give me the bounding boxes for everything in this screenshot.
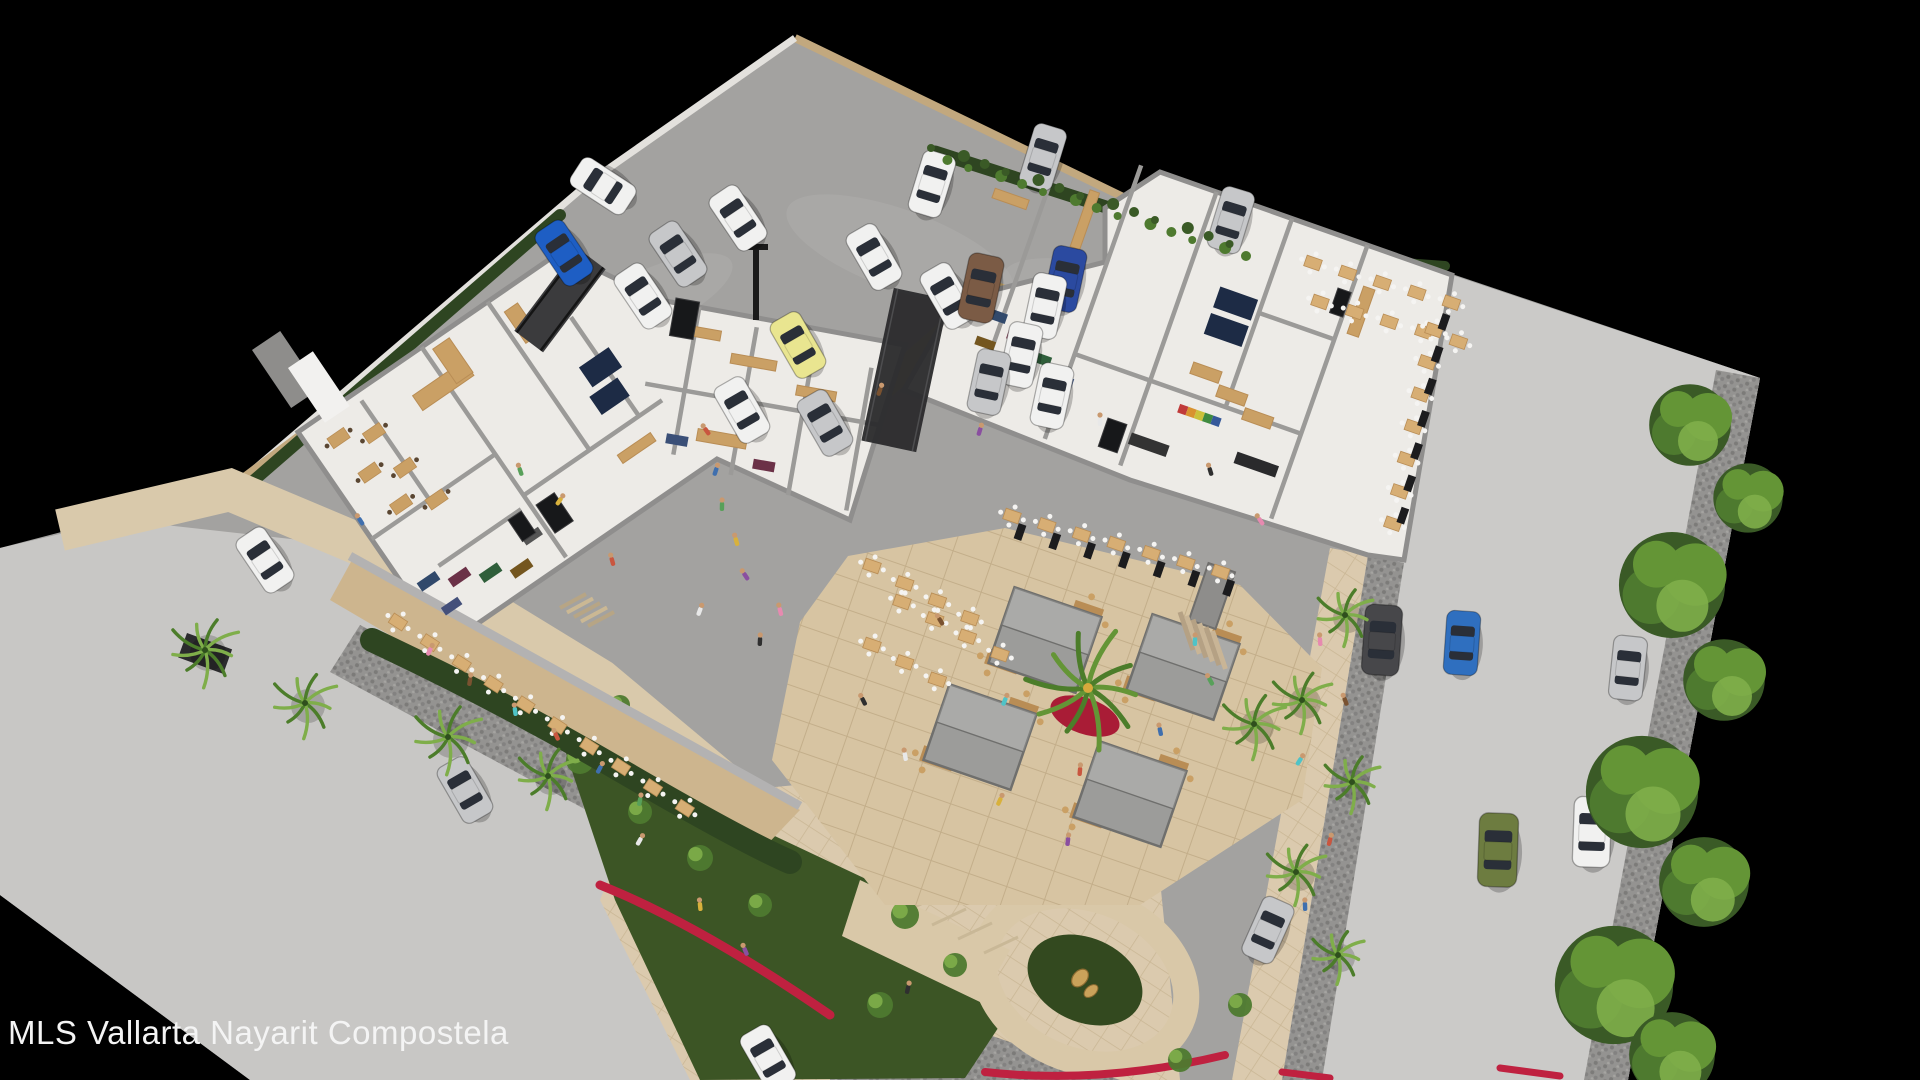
shrub: [868, 994, 882, 1008]
hedge-leaf: [1076, 192, 1084, 200]
car-roof: [1449, 635, 1474, 653]
hedge-leaf: [1151, 216, 1159, 224]
shrub: [749, 895, 762, 908]
hedge-leaf: [1188, 236, 1196, 244]
tree-canopy: [1691, 878, 1735, 922]
hedge-leaf: [1204, 231, 1214, 241]
hedge-leaf: [1017, 179, 1027, 189]
person-body: [1303, 902, 1308, 911]
tree-canopy: [1738, 495, 1772, 529]
tree-canopy: [1671, 845, 1711, 885]
palm-center: [1293, 869, 1299, 875]
hedge-leaf: [1166, 227, 1176, 237]
shrub: [892, 903, 907, 918]
car-roof: [1484, 841, 1512, 860]
watermark-text: MLS Vallarta Nayarit Compostela: [8, 1014, 509, 1052]
person: [719, 497, 724, 511]
shrub: [944, 955, 957, 968]
car-roof: [1368, 631, 1396, 650]
hedge-leaf: [1054, 183, 1064, 193]
tree-canopy: [1626, 787, 1681, 842]
tree-canopy: [1723, 469, 1754, 500]
person-body: [1318, 637, 1323, 646]
plaza-3d-rendering: [0, 0, 1920, 1080]
palm-center: [202, 647, 208, 653]
hedge-leaf: [1092, 203, 1102, 213]
tree-canopy: [1660, 391, 1696, 427]
hedge-leaf: [942, 155, 952, 165]
hedge-leaf: [927, 144, 935, 152]
person-head: [1097, 412, 1102, 417]
car-roof: [1615, 660, 1641, 678]
person: [1192, 632, 1198, 646]
person-body: [720, 502, 725, 511]
screenshot-canvas: MLS Vallarta Nayarit Compostela: [0, 0, 1920, 1080]
shrub: [1229, 995, 1242, 1008]
person: [1302, 897, 1308, 911]
shrub: [1169, 1050, 1182, 1063]
tree-canopy: [1633, 541, 1680, 588]
hedge-leaf: [1002, 168, 1010, 176]
hedge-leaf: [1226, 240, 1234, 248]
person-body: [757, 637, 762, 646]
tree-canopy: [1678, 421, 1718, 461]
hedge-leaf: [1033, 174, 1045, 186]
hedge-leaf: [1039, 188, 1047, 196]
palm-center: [1335, 952, 1341, 958]
person-body: [1193, 637, 1198, 646]
tree-canopy: [1656, 580, 1708, 632]
hedge-leaf: [964, 164, 972, 172]
car: [1477, 813, 1523, 894]
tree-canopy: [1641, 1019, 1679, 1057]
hedge-leaf: [1241, 251, 1251, 261]
tree-canopy: [1712, 676, 1752, 716]
tree-canopy: [1601, 745, 1651, 795]
tree-canopy: [1694, 646, 1730, 682]
light-mast: [753, 250, 759, 320]
palm-crown: [1083, 683, 1093, 693]
hedge-leaf: [1129, 207, 1139, 217]
person-body: [1098, 417, 1102, 426]
palm-center: [1342, 612, 1348, 618]
person: [1097, 412, 1102, 426]
palm-center: [1299, 697, 1305, 703]
hedge-leaf: [1114, 212, 1122, 220]
palm-center: [545, 773, 551, 779]
hedge-leaf: [1107, 198, 1119, 210]
palm-center: [1349, 779, 1355, 785]
person-body: [1077, 767, 1082, 776]
hedge-leaf: [980, 159, 990, 169]
hedge-leaf: [1182, 222, 1194, 234]
palm-center: [1251, 721, 1257, 727]
palm-center: [302, 700, 308, 706]
hedge-leaf: [958, 150, 970, 162]
palm-center: [445, 734, 451, 740]
shrub: [688, 847, 702, 861]
tree-canopy: [1571, 936, 1623, 988]
